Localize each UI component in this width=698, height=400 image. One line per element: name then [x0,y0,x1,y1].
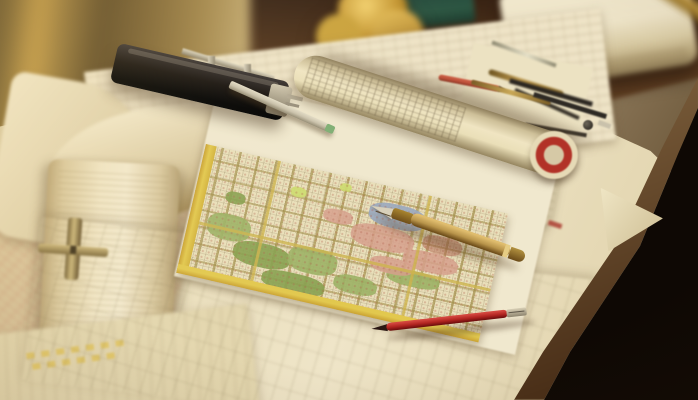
photo-scene [0,0,698,400]
cross-clip-hole [70,246,77,254]
divider-hinge [583,120,593,130]
pen-tail [508,247,527,264]
cross-clip [34,215,119,290]
